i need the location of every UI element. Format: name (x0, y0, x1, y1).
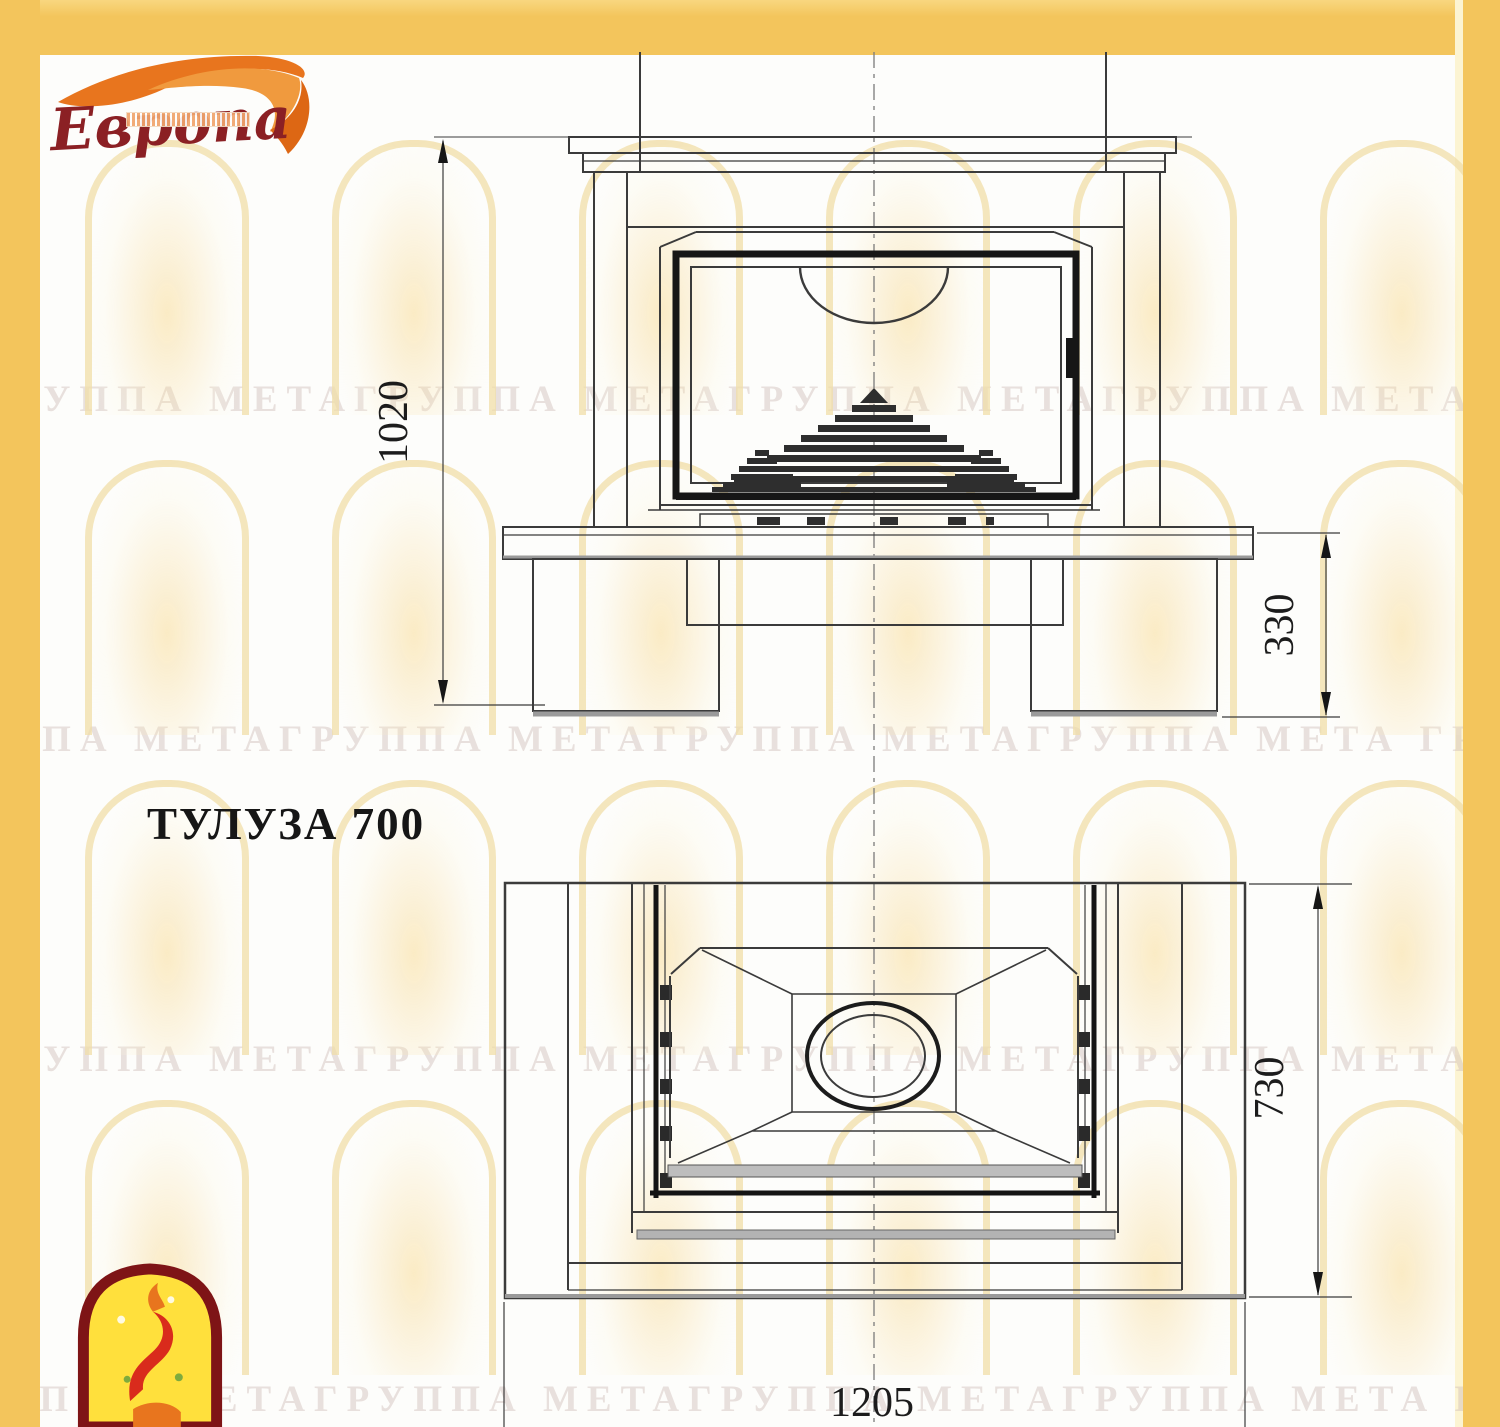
page-title: ТУЛУЗА 700 (147, 798, 425, 850)
plan-view-drawing (505, 883, 1245, 1298)
firebird-emblem-icon (75, 1260, 225, 1427)
brand-logo: Европа (48, 50, 318, 200)
door-handle (1066, 338, 1075, 378)
fire-grate (712, 388, 1036, 492)
front-view-drawing (434, 52, 1253, 714)
technical-drawing: 1020 330 (0, 0, 1500, 1427)
corner-emblem (75, 1260, 225, 1427)
dim-label-width: 1205 (830, 1380, 914, 1426)
logo-tagline-band (126, 112, 250, 127)
flue-opening (807, 1003, 939, 1109)
dim-label-depth: 730 (1247, 1057, 1293, 1120)
dim-label-overall-height: 1020 (371, 380, 417, 464)
dim-label-plinth-height: 330 (1257, 594, 1303, 657)
